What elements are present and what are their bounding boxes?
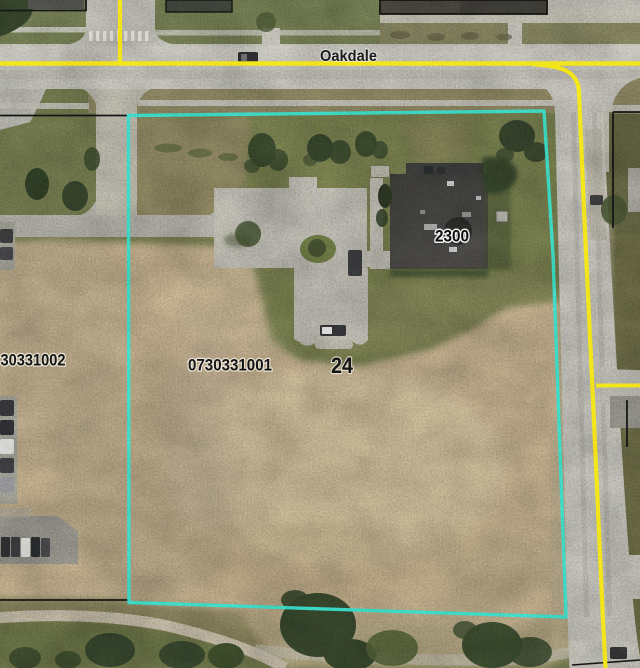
svg-text:24: 24 — [331, 353, 354, 378]
svg-text:0730331001: 0730331001 — [188, 357, 272, 375]
svg-text:2300: 2300 — [435, 227, 469, 246]
svg-text:30331002: 30331002 — [1, 352, 66, 370]
svg-text:Oakdale: Oakdale — [320, 48, 377, 65]
